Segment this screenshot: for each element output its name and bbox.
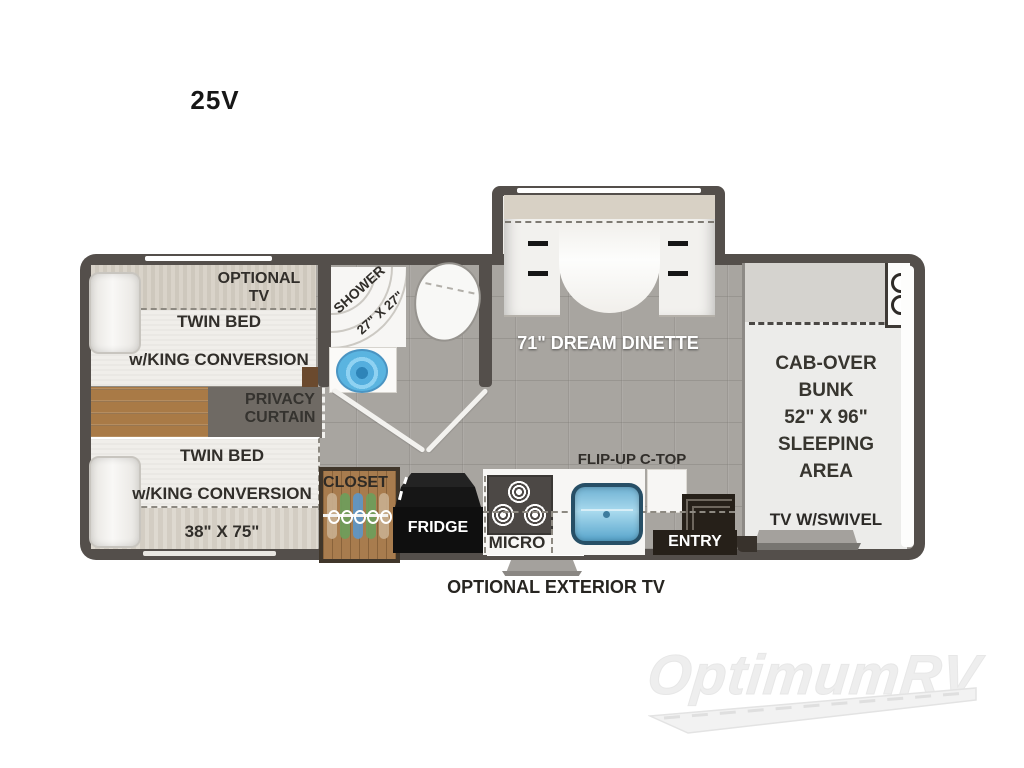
- cab-corner: [737, 536, 757, 552]
- tv-swivel-base: [751, 543, 861, 550]
- closet: CLOSET: [319, 467, 400, 563]
- rear-bottom-window: [143, 551, 276, 556]
- entry-landing: ENTRY: [653, 530, 737, 555]
- sink-drain-icon: [603, 511, 610, 518]
- nightstand: [91, 387, 209, 438]
- tv-swivel: [755, 530, 857, 543]
- bench-drawer-handle: [668, 241, 688, 246]
- step-edge: [692, 506, 730, 530]
- tv-swivel-label: TV W/SWIVEL: [751, 510, 901, 529]
- burner-icon: [523, 503, 547, 527]
- bathroom-sink: [336, 349, 388, 393]
- hanger-hook-icon: [380, 510, 392, 524]
- stove-cooktop: [487, 475, 553, 535]
- cab-over-bunk-area: CAB-OVER BUNK 52" X 96" SLEEPING AREA TV…: [742, 263, 907, 549]
- hanger-hook-icon: [354, 510, 366, 524]
- optional-tv-label: OPTIONAL TV: [203, 270, 315, 306]
- kitchen-sink: [571, 483, 643, 545]
- entry-steps: [682, 494, 735, 534]
- bench-drawer-handle: [528, 241, 548, 246]
- floorplan-page: 25V 71" DREAM DINETTE OPTIONAL TV TWIN B…: [0, 0, 1024, 768]
- front-bed-line1: TWIN BED: [180, 446, 264, 465]
- hanger-hook-icon: [341, 510, 353, 524]
- floorplan-title: 25V: [160, 86, 270, 115]
- entry-label: ENTRY: [653, 533, 737, 551]
- toilet-seam: [425, 282, 474, 294]
- exterior-tv-base: [502, 571, 582, 576]
- closet-label: CLOSET: [323, 474, 388, 492]
- bench-drawer-handle: [528, 271, 548, 276]
- dinette-dashed-line: [505, 221, 714, 223]
- dinette-label: 71" DREAM DINETTE: [508, 333, 708, 353]
- rear-bed-line2: w/KING CONVERSION: [129, 350, 308, 369]
- fridge-mid: [395, 487, 481, 507]
- flip-up-ctop-label: FLIP-UP C-TOP: [572, 452, 692, 469]
- privacy-curtain-label: PRIVACY CURTAIN: [228, 391, 332, 427]
- rear-top-window: [145, 256, 272, 261]
- burner-icon: [507, 480, 531, 504]
- bunk-label: CAB-OVER BUNK 52" X 96" SLEEPING AREA: [756, 350, 896, 485]
- windshield: [901, 266, 914, 547]
- fridge-top: [401, 473, 475, 487]
- exterior-tv-label: OPTIONAL EXTERIOR TV: [446, 577, 666, 597]
- hanger-hook-icon: [367, 510, 379, 524]
- front-bed-label: TWIN BED w/KING CONVERSION 38" X 75": [126, 446, 318, 541]
- dinette-seatback-band: [504, 195, 715, 219]
- rear-bed-line1: TWIN BED: [177, 312, 261, 331]
- slideout-window: [517, 188, 701, 193]
- front-bed-line3: 38" X 75": [185, 522, 260, 541]
- bunk-dashed-line: [749, 322, 903, 325]
- burner-icon: [491, 503, 515, 527]
- micro-label: MICRO: [462, 533, 572, 552]
- bedside-cabinet: [302, 367, 318, 388]
- flip-up-counter: [647, 469, 687, 513]
- watermark-road-icon: [648, 686, 978, 736]
- bench-drawer-handle: [668, 271, 688, 276]
- hanger-hook-icon: [328, 510, 340, 524]
- bathroom-wall-right: [479, 265, 492, 387]
- bunk-head-band: [745, 263, 907, 322]
- front-bed-line2: w/KING CONVERSION: [132, 484, 311, 503]
